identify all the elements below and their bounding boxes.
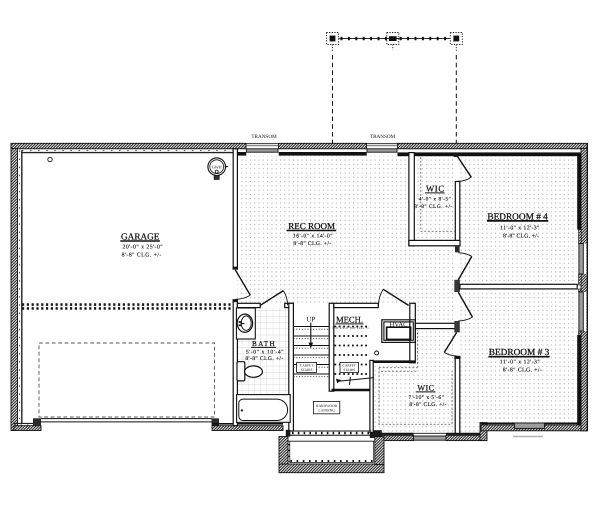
- svg-text:STAIRS: STAIRS: [343, 368, 355, 372]
- svg-text:7'-10" x 5'-6": 7'-10" x 5'-6": [409, 395, 445, 401]
- svg-text:8'-8" CLG. +/-: 8'-8" CLG. +/-: [409, 402, 446, 408]
- svg-text:8'-8" CLG. +/-: 8'-8" CLG. +/-: [503, 234, 539, 240]
- svg-text:GARAGE: GARAGE: [121, 232, 160, 242]
- svg-text:TRANSOM: TRANSOM: [251, 134, 277, 140]
- svg-text:8'-8" CLG. +/-: 8'-8" CLG. +/-: [414, 204, 453, 210]
- svg-text:8'-8" CLG. +/-: 8'-8" CLG. +/-: [122, 252, 162, 258]
- svg-text:11'-0" x 12'-3": 11'-0" x 12'-3": [500, 225, 540, 231]
- svg-text:TRANSOM: TRANSOM: [370, 134, 396, 140]
- svg-text:LANDING: LANDING: [318, 408, 335, 412]
- svg-text:16'-0" x 14'-0": 16'-0" x 14'-0": [293, 234, 333, 240]
- svg-text:GWH: GWH: [212, 165, 222, 170]
- svg-text:UP: UP: [306, 315, 315, 323]
- svg-text:8'-8" CLG. +/-: 8'-8" CLG. +/-: [503, 367, 543, 373]
- svg-text:STAIRS: STAIRS: [301, 368, 313, 372]
- svg-text:WIC: WIC: [417, 384, 434, 393]
- svg-text:20'-0" x 25'-0": 20'-0" x 25'-0": [122, 244, 163, 250]
- svg-text:HVAC: HVAC: [390, 321, 408, 328]
- svg-text:REC ROOM: REC ROOM: [288, 221, 335, 231]
- svg-text:8'-8" CLG. +/-: 8'-8" CLG. +/-: [245, 356, 283, 362]
- svg-text:4'-0" x 8'-5": 4'-0" x 8'-5": [419, 197, 452, 203]
- svg-text:8'-8" x 9'-0" 8'-8" CLG. +/-: 8'-8" x 9'-0" 8'-8" CLG. +/-: [332, 326, 369, 330]
- svg-text:5'-0" x 10'-4": 5'-0" x 10'-4": [246, 349, 284, 355]
- svg-text:HARDWOOD: HARDWOOD: [316, 404, 338, 408]
- svg-text:WIC: WIC: [426, 184, 445, 194]
- svg-text:11'-0" x 12'-3": 11'-0" x 12'-3": [500, 360, 540, 366]
- svg-text:8'-8" CLG. +/-: 8'-8" CLG. +/-: [293, 241, 331, 247]
- svg-text:MECH.: MECH.: [336, 315, 363, 325]
